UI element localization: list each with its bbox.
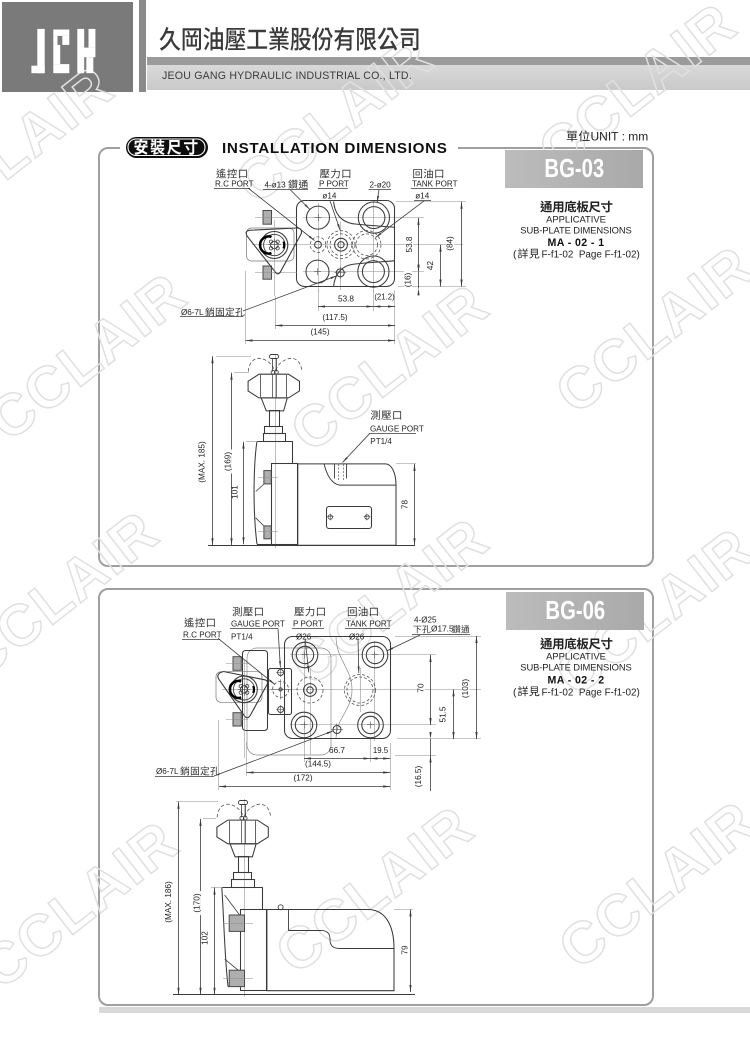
svg-text:P PORT: P PORT — [319, 180, 349, 189]
svg-text:(103): (103) — [461, 679, 470, 698]
svg-text:70: 70 — [417, 683, 426, 693]
svg-text:(16.5): (16.5) — [414, 766, 423, 788]
svg-text:TANK PORT: TANK PORT — [412, 180, 458, 189]
svg-text:APPLICATIVE: APPLICATIVE — [546, 213, 606, 224]
svg-text:F-f1-02 Page F-f1-02): F-f1-02 Page F-f1-02) — [542, 250, 640, 261]
svg-text:53.8: 53.8 — [338, 295, 354, 304]
svg-text:19.5: 19.5 — [373, 746, 389, 755]
svg-text:Ø17.5: Ø17.5 — [431, 624, 454, 634]
svg-text:INSTALLATION DIMENSIONS: INSTALLATION DIMENSIONS — [222, 140, 448, 157]
svg-text:(MAX. 185): (MAX. 185) — [198, 441, 207, 483]
svg-text:Ø26: Ø26 — [349, 632, 365, 641]
svg-text:SUB-PLATE DIMENSIONS: SUB-PLATE DIMENSIONS — [520, 225, 631, 236]
svg-text:F-f1-02 Page F-f1-02): F-f1-02 Page F-f1-02) — [542, 687, 640, 698]
svg-text:Ø6-7L: Ø6-7L — [181, 308, 204, 317]
svg-text:42: 42 — [426, 261, 435, 271]
svg-text:(144.5): (144.5) — [305, 760, 331, 769]
svg-text:2-ø20: 2-ø20 — [370, 181, 392, 190]
svg-text:(16): (16) — [404, 272, 413, 287]
svg-text:TANK PORT: TANK PORT — [346, 620, 392, 629]
svg-text:MA - 02 - 1: MA - 02 - 1 — [548, 237, 605, 249]
svg-text:(117.5): (117.5) — [322, 313, 348, 322]
svg-text:APPLICATIVE: APPLICATIVE — [546, 650, 606, 661]
svg-text:(84): (84) — [446, 236, 455, 251]
svg-text:MA - 02 - 2: MA - 02 - 2 — [548, 674, 605, 686]
svg-text:UNIT : mm: UNIT : mm — [591, 130, 649, 144]
svg-text:101: 101 — [230, 485, 239, 499]
svg-text:53.8: 53.8 — [405, 236, 414, 252]
svg-text:GAUGE PORT: GAUGE PORT — [370, 424, 424, 433]
svg-text:ø14: ø14 — [415, 192, 429, 201]
svg-text:Ø26: Ø26 — [296, 632, 312, 641]
svg-text:66.7: 66.7 — [329, 746, 345, 755]
svg-text:PT1/4: PT1/4 — [370, 437, 392, 446]
svg-text:(21.2): (21.2) — [374, 293, 395, 302]
svg-text:(170): (170) — [193, 893, 202, 912]
svg-text:R.C PORT: R.C PORT — [183, 630, 222, 639]
svg-text:102: 102 — [201, 931, 210, 945]
svg-text:(: ( — [513, 250, 517, 261]
svg-text:79: 79 — [401, 945, 410, 955]
svg-text:(MAX. 186): (MAX. 186) — [164, 881, 173, 923]
svg-text:78: 78 — [401, 500, 410, 510]
svg-text:4-ø13: 4-ø13 — [265, 181, 287, 190]
svg-text:Ø6-7L: Ø6-7L — [156, 767, 179, 776]
svg-text:(172): (172) — [293, 774, 312, 783]
svg-text:(: ( — [513, 687, 517, 698]
svg-text:P PORT: P PORT — [293, 620, 323, 629]
svg-text:51.5: 51.5 — [439, 706, 448, 722]
svg-text:PT1/4: PT1/4 — [231, 632, 253, 641]
svg-text:(169): (169) — [224, 452, 233, 471]
svg-text:(145): (145) — [310, 328, 329, 337]
svg-text:SUB-PLATE DIMENSIONS: SUB-PLATE DIMENSIONS — [520, 662, 631, 673]
svg-text:GAUGE PORT: GAUGE PORT — [231, 620, 285, 629]
svg-text:ø14: ø14 — [322, 192, 336, 201]
svg-text:R.C PORT: R.C PORT — [215, 180, 254, 189]
